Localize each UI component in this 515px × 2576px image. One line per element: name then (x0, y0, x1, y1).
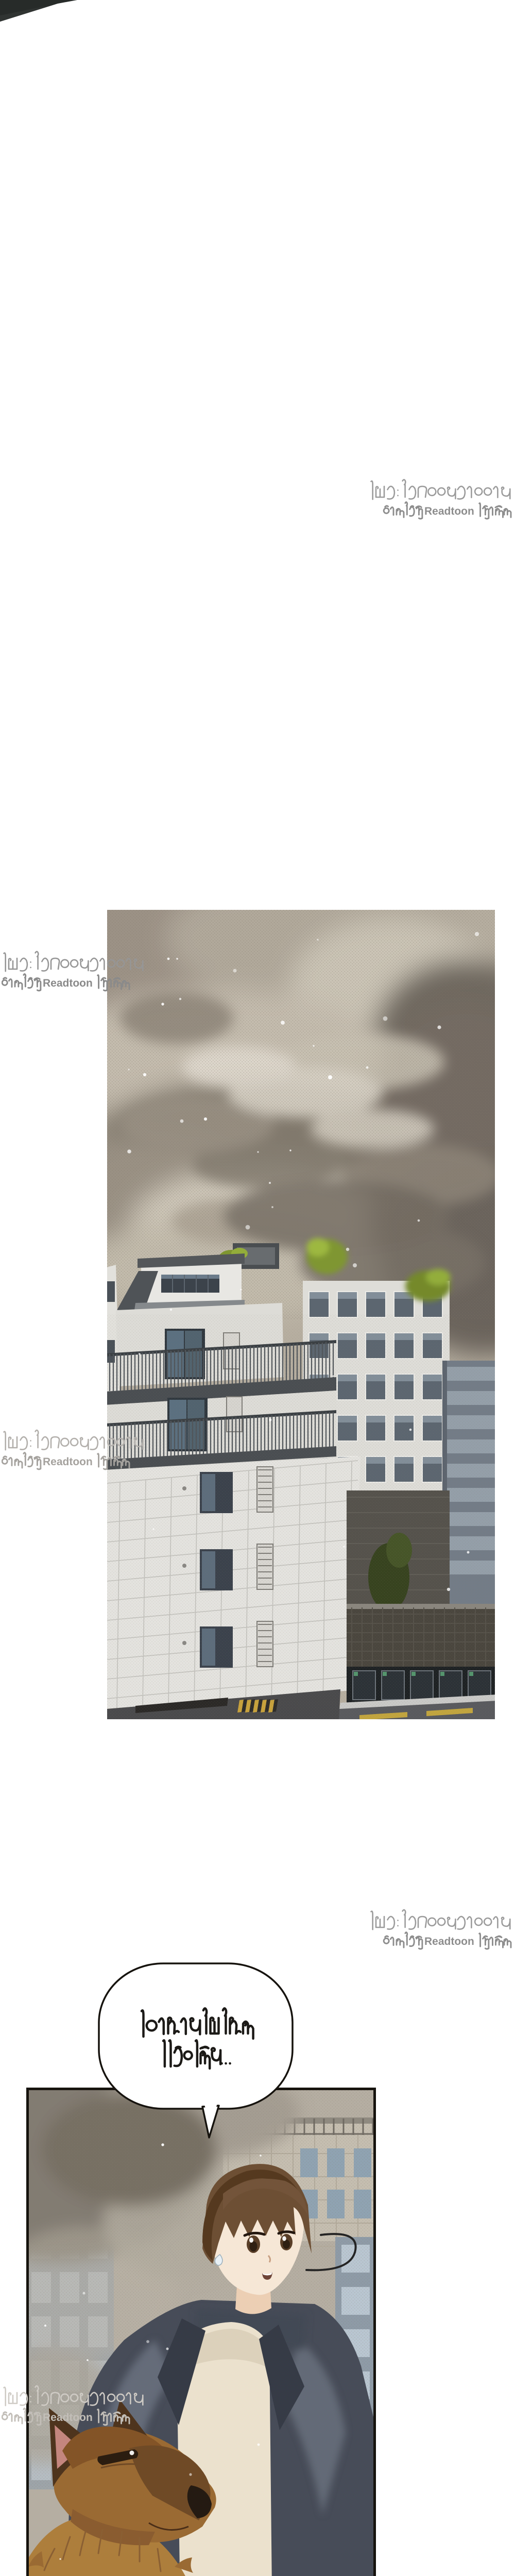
svg-text:Readtoon: Readtoon (424, 505, 474, 517)
svg-text:Readtoon: Readtoon (43, 2412, 93, 2424)
svg-text:Readtoon: Readtoon (43, 1456, 93, 1468)
svg-text:Readtoon: Readtoon (424, 1936, 474, 1947)
svg-text:Readtoon: Readtoon (43, 977, 93, 989)
